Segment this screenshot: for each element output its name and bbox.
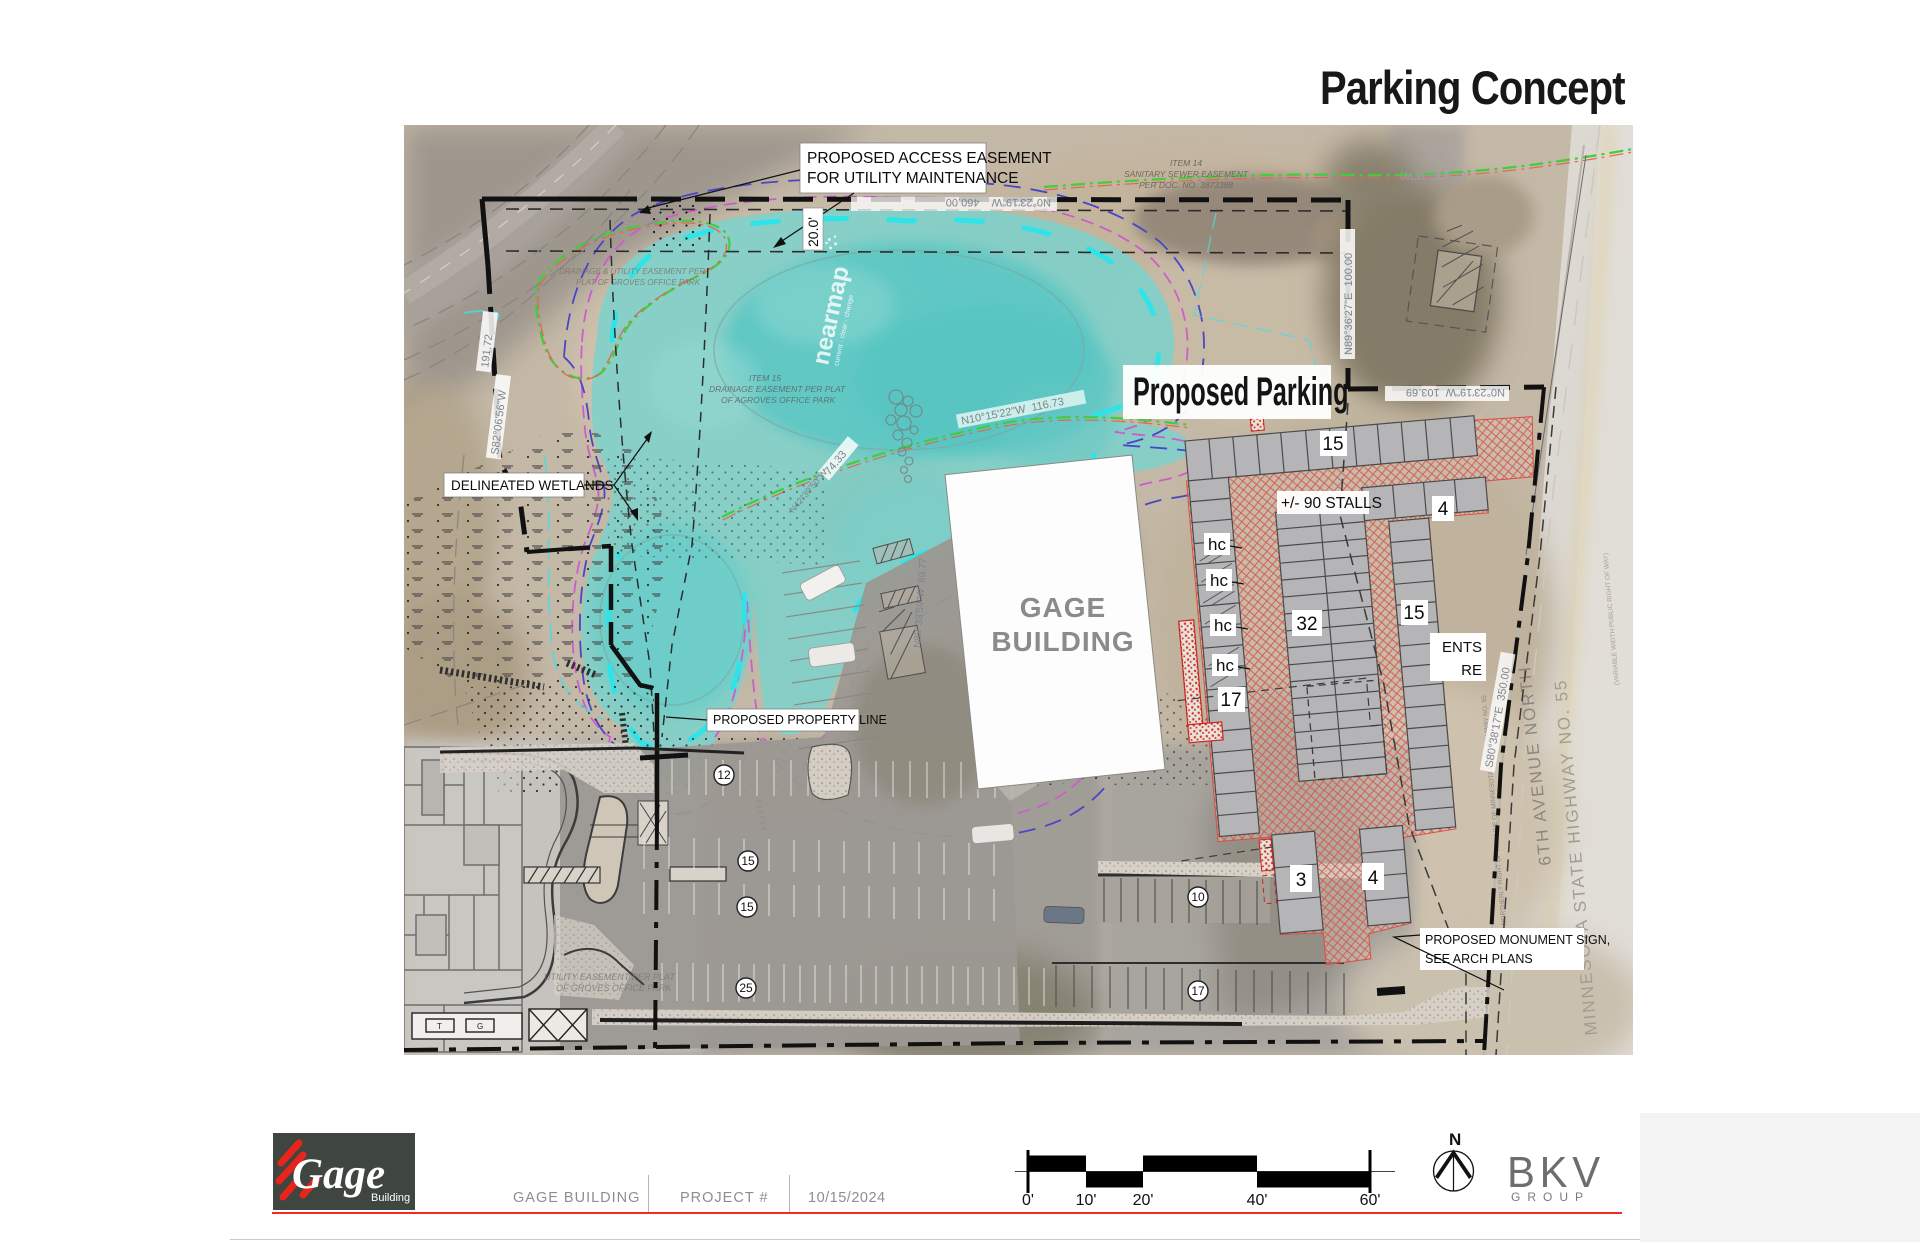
svg-text:Gage: Gage [292,1151,385,1198]
svg-text:+/- 90 STALLS: +/- 90 STALLS [1281,495,1382,512]
svg-text:FOR UTILITY MAINTENANCE: FOR UTILITY MAINTENANCE [807,170,1019,187]
svg-text:0': 0' [1022,1192,1034,1209]
svg-text:BUILDING: BUILDING [991,626,1134,657]
svg-text:40': 40' [1247,1192,1268,1209]
svg-text:SANITARY SEWER EASEMENT: SANITARY SEWER EASEMENT [1124,169,1249,179]
svg-text:15: 15 [1322,434,1343,455]
svg-text:20': 20' [1133,1192,1154,1209]
svg-text:T: T [437,1022,442,1031]
svg-text:hc: hc [1216,656,1234,675]
svg-text:(N00°49'48"W): (N00°49'48"W) [1400,170,1466,181]
svg-text:10: 10 [1191,890,1205,904]
svg-text:20.0': 20.0' [805,217,821,247]
svg-text:G: G [477,1022,483,1031]
svg-text:UTILITY EASEMENT PER PLAT: UTILITY EASEMENT PER PLAT [544,972,676,982]
svg-text:PLAT OF GROVES OFFICE PARK: PLAT OF GROVES OFFICE PARK [576,278,701,287]
svg-text:hc: hc [1214,616,1232,635]
svg-text:Proposed Parking: Proposed Parking [1133,370,1349,414]
svg-text:15: 15 [741,854,755,868]
svg-text:ENTS: ENTS [1442,639,1482,656]
svg-text:hc: hc [1210,571,1228,590]
svg-text:N89°36'27"E 100.00: N89°36'27"E 100.00 [1343,253,1355,355]
svg-text:32: 32 [1296,614,1317,635]
svg-text:PROPOSED MONUMENT SIGN,: PROPOSED MONUMENT SIGN, [1425,933,1610,947]
svg-text:Building: Building [371,1192,410,1204]
svg-text:60': 60' [1360,1192,1381,1209]
svg-text:17: 17 [1191,984,1205,998]
svg-text:N: N [1449,1130,1461,1149]
svg-text:GAGE: GAGE [1020,592,1106,623]
svg-text:DRAINAGE EASEMENT PER PLAT: DRAINAGE EASEMENT PER PLAT [709,384,846,394]
svg-text:15: 15 [1403,603,1424,624]
svg-text:15: 15 [740,900,754,914]
svg-text:hc: hc [1208,535,1226,554]
svg-text:3: 3 [1296,870,1307,891]
svg-text:12: 12 [717,768,731,782]
svg-text:N0°23'19"W 103.69: N0°23'19"W 103.69 [1406,386,1505,398]
svg-text:4: 4 [1438,499,1449,520]
svg-text:ITEM 14: ITEM 14 [1170,158,1202,168]
svg-text:10': 10' [1076,1192,1097,1209]
svg-text:RE: RE [1461,662,1482,679]
svg-text:ITEM 15: ITEM 15 [749,373,781,383]
svg-text:PROPOSED ACCESS EASEMENT: PROPOSED ACCESS EASEMENT [807,150,1052,167]
svg-text:PROPOSED PROPERTY LINE: PROPOSED PROPERTY LINE [713,713,887,727]
svg-text:SEE ARCH PLANS: SEE ARCH PLANS [1425,952,1533,966]
svg-text:DRAINAGE & UTILITY EASEMENT PE: DRAINAGE & UTILITY EASEMENT PER [559,267,705,276]
svg-text:OF AGROVES OFFICE PARK: OF AGROVES OFFICE PARK [721,395,835,405]
svg-text:17: 17 [1220,690,1241,711]
svg-text:N0°23'19"W 460.00: N0°23'19"W 460.00 [946,196,1051,208]
svg-text:25: 25 [739,981,753,995]
svg-text:4: 4 [1368,868,1379,889]
svg-text:PER DOC. NO. 3873388: PER DOC. NO. 3873388 [1139,180,1233,190]
